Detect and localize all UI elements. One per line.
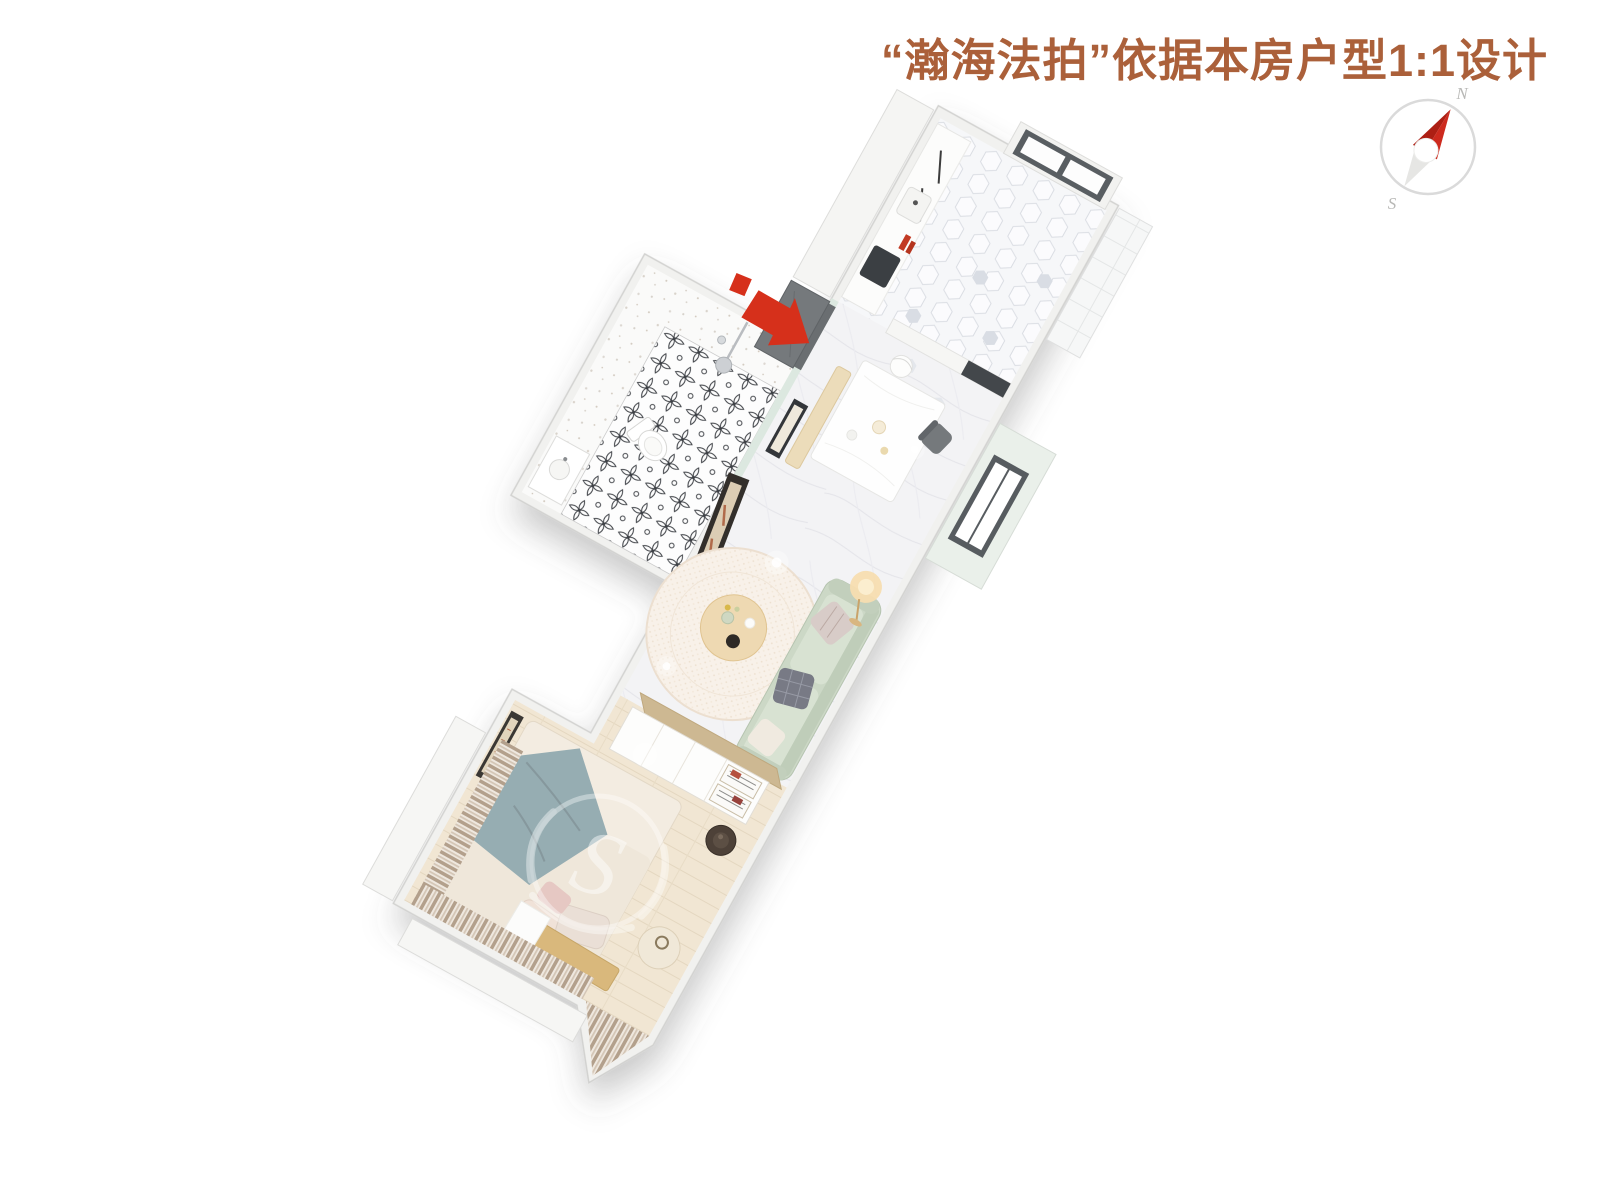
compass-south-label: S [1388, 194, 1397, 213]
compass: N S [1381, 84, 1475, 213]
floorplan-scene: S N S [0, 0, 1600, 1200]
floorplan [280, 0, 1189, 1133]
floorplan-page: S N S “瀚海法拍”依据本房户型1:1设计 [0, 0, 1600, 1200]
page-title: “瀚海法拍”依据本房户型1:1设计 [881, 24, 1548, 89]
compass-needle [1392, 102, 1462, 194]
